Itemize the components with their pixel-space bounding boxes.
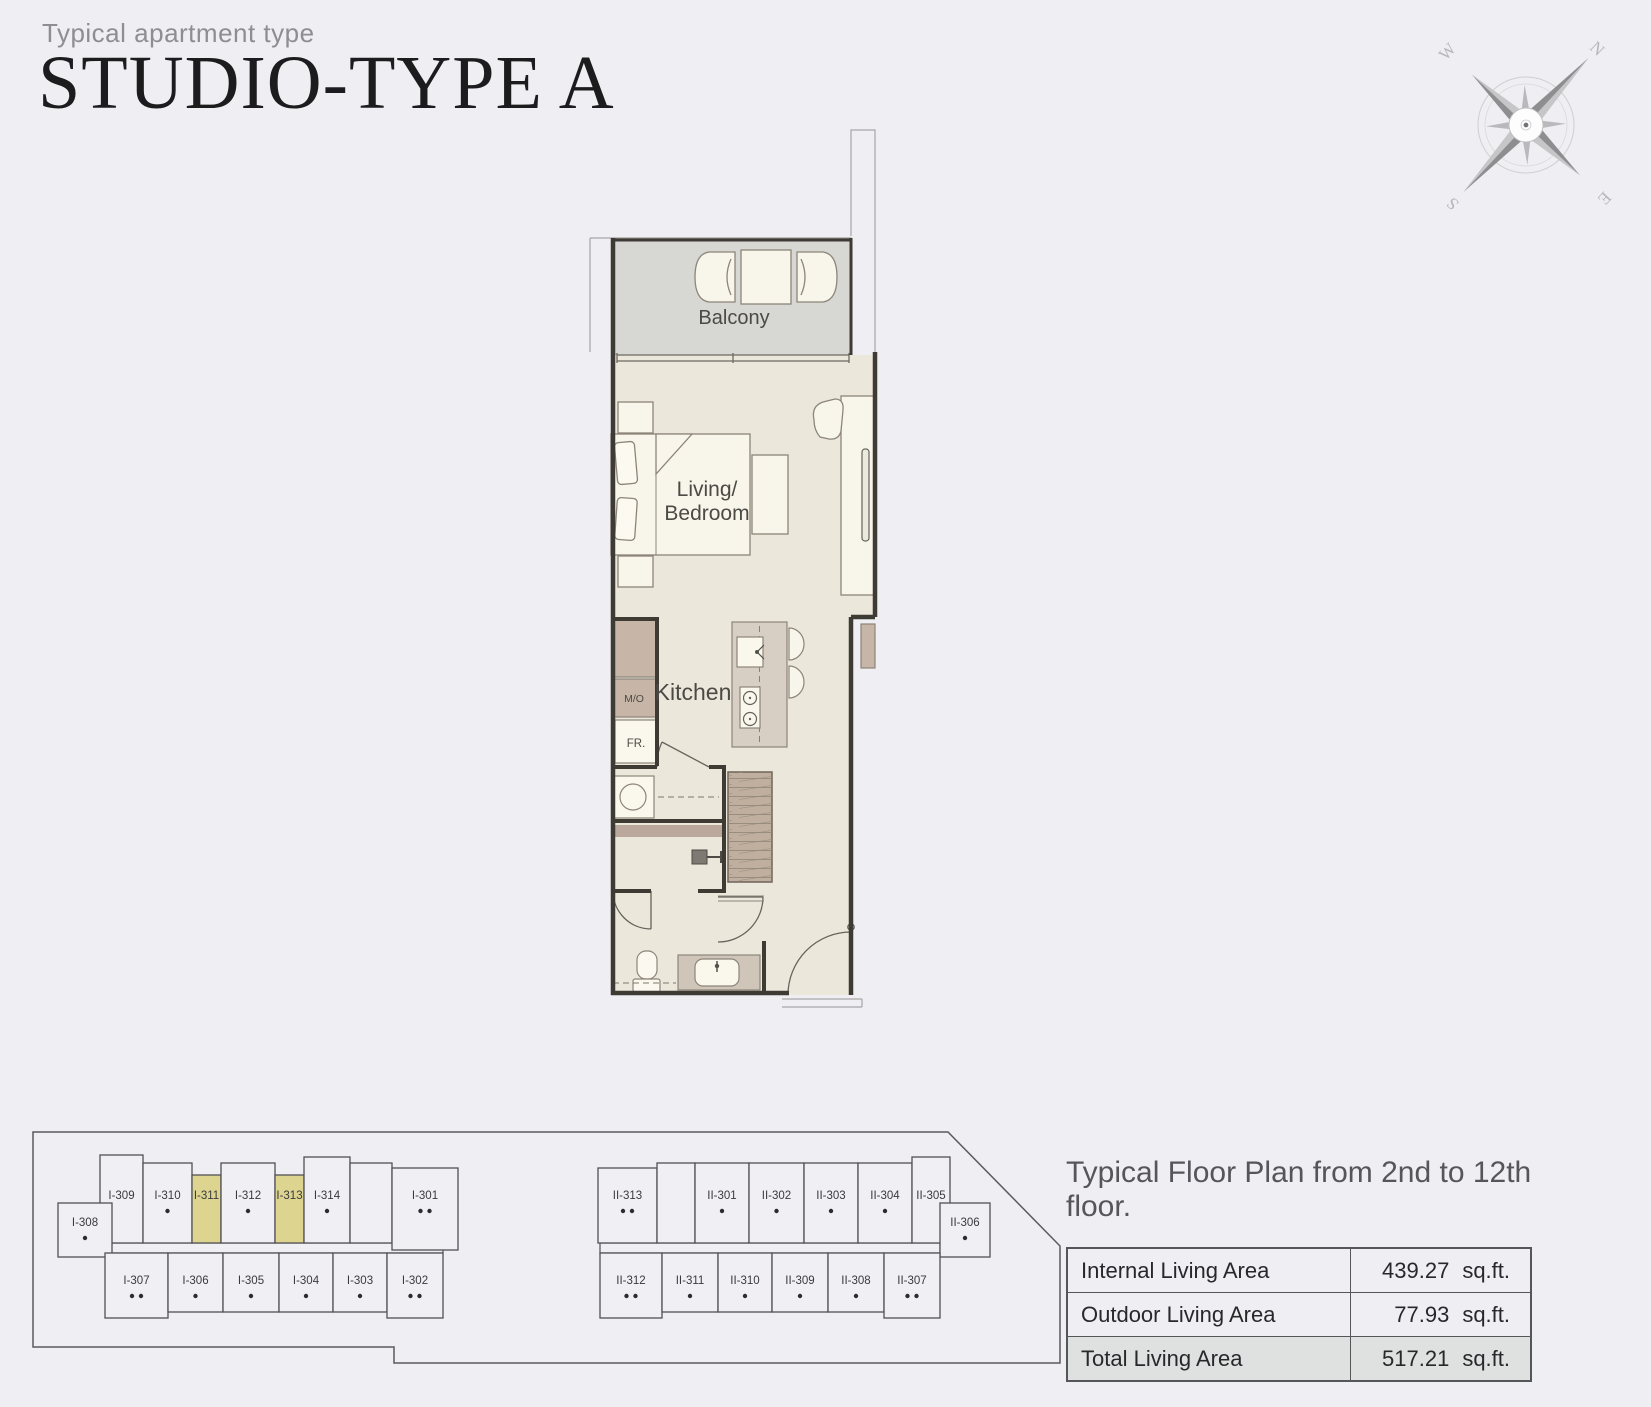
compass-n: N xyxy=(1586,37,1608,59)
balcony-table xyxy=(741,250,791,304)
pillow xyxy=(615,497,638,540)
living-bedroom-label-line2: Bedroom xyxy=(664,502,749,525)
bedroom-count-dot xyxy=(963,1236,967,1240)
bedroom-count-dot xyxy=(630,1209,634,1213)
bedroom-count-dot xyxy=(358,1294,362,1298)
bedroom-count-dot xyxy=(408,1294,412,1298)
row-label: Internal Living Area xyxy=(1067,1248,1351,1293)
bedroom-count-dot xyxy=(246,1209,250,1213)
row-unit: sq.ft. xyxy=(1462,1302,1510,1327)
compass-s: S xyxy=(1443,193,1463,213)
keyplan-unit-label: II-303 xyxy=(816,1190,845,1202)
bedroom-count-dot xyxy=(165,1209,169,1213)
keyplan-unit-label: I-303 xyxy=(347,1275,373,1287)
row-value: 439.27sq.ft. xyxy=(1351,1248,1532,1293)
lounge-chair xyxy=(813,399,843,439)
floor-range-caption: Typical Floor Plan from 2nd to 12th floo… xyxy=(1066,1156,1532,1224)
bedroom-count-dot xyxy=(621,1209,625,1213)
nightstand-bottom xyxy=(618,556,653,587)
bedroom-count-dot xyxy=(417,1294,421,1298)
keyplan-unit-label: II-311 xyxy=(676,1275,705,1287)
bedroom-count-dot xyxy=(720,1209,724,1213)
keyplan-unit-label: I-304 xyxy=(293,1275,320,1287)
keyplan-unit-label: II-308 xyxy=(841,1275,870,1287)
bed-bench xyxy=(752,455,788,534)
bedroom-count-dot xyxy=(798,1294,802,1298)
toilet-bowl xyxy=(637,951,657,979)
keyplan-unit-label: I-302 xyxy=(402,1275,428,1287)
keyplan-unit-label: II-304 xyxy=(870,1190,900,1202)
keyplan-unit-cell-highlighted xyxy=(275,1175,304,1243)
row-unit: sq.ft. xyxy=(1462,1258,1510,1283)
keyplan-unit-label: II-302 xyxy=(762,1190,791,1202)
keyplan-unit-label: II-310 xyxy=(730,1275,759,1287)
toilet-tank xyxy=(633,979,660,992)
keyplan-unit-cell xyxy=(58,1203,112,1257)
table-row-outdoor: Outdoor Living Area 77.93sq.ft. xyxy=(1067,1293,1531,1337)
row-value: 517.21sq.ft. xyxy=(1351,1337,1532,1382)
keyplan-unit-cell xyxy=(657,1163,695,1243)
kitchen-cabinet xyxy=(613,620,657,677)
balcony-chair-left xyxy=(695,252,735,302)
shower-head-icon xyxy=(692,850,707,864)
fridge-label: FR. xyxy=(627,738,646,750)
keyplan-unit-label: II-305 xyxy=(916,1190,945,1202)
keyplan-unit-label: II-301 xyxy=(707,1190,736,1202)
row-label: Outdoor Living Area xyxy=(1067,1293,1351,1337)
keyplan-unit-cell-highlighted xyxy=(192,1175,221,1243)
bedroom-count-dot xyxy=(914,1294,918,1298)
bedroom-count-dot xyxy=(905,1294,909,1298)
compass-w: W xyxy=(1438,39,1460,64)
bedroom-count-dot xyxy=(854,1294,858,1298)
keyplan-unit-label: II-307 xyxy=(897,1275,926,1287)
keyplan-unit-label: II-312 xyxy=(616,1275,645,1287)
summary-panel: Typical Floor Plan from 2nd to 12th floo… xyxy=(1066,1156,1532,1382)
bedroom-count-dot xyxy=(427,1209,431,1213)
building-key-plan: I-309I-310I-311I-312I-313I-314I-301I-308… xyxy=(0,1060,1120,1407)
floorplan-page: { "page": { "background": "#efeef2" }, "… xyxy=(0,0,1651,1407)
keyplan-unit-label: I-301 xyxy=(412,1190,438,1202)
table-row-internal: Internal Living Area 439.27sq.ft. xyxy=(1067,1248,1531,1293)
keyplan-unit-cell xyxy=(695,1163,749,1243)
row-unit: sq.ft. xyxy=(1462,1346,1510,1371)
bedroom-count-dot xyxy=(633,1294,637,1298)
page-title: STUDIO-TYPE A xyxy=(38,40,615,127)
bedroom-count-dot xyxy=(743,1294,747,1298)
keyplan-unit-cell xyxy=(598,1168,657,1243)
bedroom-count-dot xyxy=(139,1294,143,1298)
balcony-chair-right xyxy=(797,252,837,302)
wall-counter xyxy=(861,624,875,668)
nightstand-top xyxy=(618,402,653,433)
keyplan-unit-label: II-313 xyxy=(613,1190,642,1202)
keyplan-unit-cell xyxy=(940,1203,990,1257)
keyplan-unit-label: II-306 xyxy=(950,1217,979,1229)
bedroom-count-dot xyxy=(304,1294,308,1298)
area-table: Internal Living Area 439.27sq.ft. Outdoo… xyxy=(1066,1247,1532,1382)
keyplan-unit-cell xyxy=(804,1163,858,1243)
keyplan-unit-cell xyxy=(221,1163,275,1243)
kitchen-label: Kitchen xyxy=(655,679,732,705)
keyplan-unit-cell xyxy=(392,1168,458,1250)
keyplan-unit-cell xyxy=(858,1163,912,1243)
balcony-label: Balcony xyxy=(698,307,769,329)
keyplan-unit-cell xyxy=(350,1163,392,1243)
bedroom-count-dot xyxy=(774,1209,778,1213)
row-value: 77.93sq.ft. xyxy=(1351,1293,1532,1337)
bedroom-count-dot xyxy=(130,1294,134,1298)
stove xyxy=(740,687,760,728)
balcony-furniture xyxy=(695,250,837,304)
keyplan-unit-label: I-314 xyxy=(314,1190,341,1202)
keyplan-unit-label: II-309 xyxy=(785,1275,814,1287)
keyplan-unit-cell xyxy=(749,1163,804,1243)
bedroom-count-dot xyxy=(325,1209,329,1213)
tv-console xyxy=(841,396,875,595)
keyplan-unit-label: I-307 xyxy=(123,1275,149,1287)
sink xyxy=(737,637,763,667)
bedroom-count-dot xyxy=(829,1209,833,1213)
wardrobe xyxy=(728,772,772,882)
living-bedroom-label-line1: Living/ xyxy=(677,478,738,501)
washing-machine xyxy=(612,776,654,818)
keyplan-unit-cell xyxy=(143,1163,192,1243)
bedroom-count-dot xyxy=(193,1294,197,1298)
bedroom-count-dot xyxy=(883,1209,887,1213)
bedroom-count-dot xyxy=(624,1294,628,1298)
bedroom-count-dot xyxy=(418,1209,422,1213)
compass-rose-icon: N E S W xyxy=(1438,36,1614,218)
keyplan-unit-label: I-306 xyxy=(182,1275,208,1287)
keyplan-unit-label: I-309 xyxy=(108,1190,134,1202)
keyplan-units-layer: I-309I-310I-311I-312I-313I-314I-301I-308… xyxy=(58,1155,990,1318)
keyplan-unit-label: I-312 xyxy=(235,1190,261,1202)
keyplan-unit-label: I-308 xyxy=(72,1217,98,1229)
keyplan-unit-label: I-305 xyxy=(238,1275,264,1287)
apartment-floor-plan: Balcony Living/ Bedroom Kitchen M/O FR. xyxy=(540,100,900,1020)
tv-icon xyxy=(862,449,869,541)
keyplan-unit-label: I-310 xyxy=(154,1190,180,1202)
bedroom-count-dot xyxy=(249,1294,253,1298)
pillow xyxy=(614,441,638,485)
table-row-total: Total Living Area 517.21sq.ft. xyxy=(1067,1337,1531,1382)
bedroom-count-dot xyxy=(83,1236,87,1240)
bedroom-count-dot xyxy=(688,1294,692,1298)
corridor-building-2 xyxy=(600,1243,940,1253)
keyplan-unit-label: I-313 xyxy=(276,1190,302,1202)
microwave-label: M/O xyxy=(624,693,644,705)
compass-e: E xyxy=(1594,188,1614,209)
keyplan-unit-label: I-311 xyxy=(194,1190,219,1202)
row-label: Total Living Area xyxy=(1067,1337,1351,1382)
